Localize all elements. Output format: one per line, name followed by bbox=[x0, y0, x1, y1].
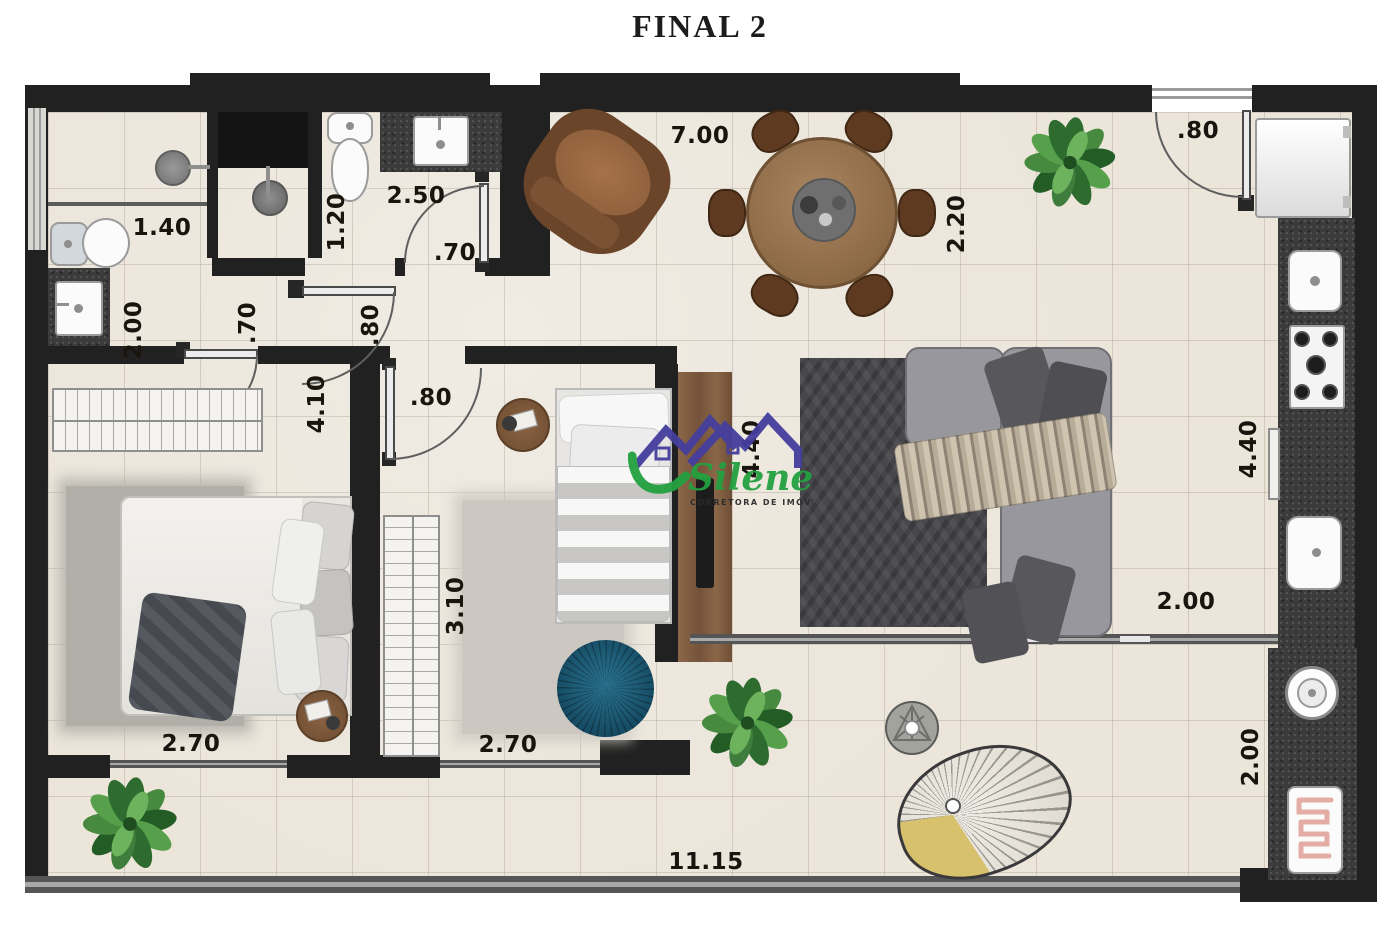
shaft bbox=[212, 112, 310, 168]
wardrobe bbox=[383, 515, 440, 757]
wall bbox=[540, 73, 960, 86]
faucet-icon bbox=[57, 303, 69, 306]
wall bbox=[190, 73, 490, 86]
door-frame bbox=[1152, 88, 1252, 91]
watermark-logo: Silene CORRETORA DE IMÓVEIS bbox=[628, 406, 813, 514]
dimension-label: 7.00 bbox=[660, 122, 740, 150]
shower-partition bbox=[48, 202, 207, 206]
tub-drain bbox=[1308, 689, 1316, 697]
throw-blanket bbox=[127, 591, 247, 722]
pillow bbox=[270, 608, 323, 696]
dimension-label: 2.00 bbox=[1146, 588, 1226, 616]
hanging-chair-hub bbox=[945, 798, 961, 814]
door-leaf bbox=[1242, 110, 1251, 200]
dimension-label: .80 bbox=[1158, 117, 1238, 145]
sink-drain bbox=[1310, 276, 1320, 286]
window-frame bbox=[39, 108, 41, 250]
bottle-icon bbox=[832, 196, 846, 210]
wall bbox=[207, 112, 218, 258]
dining-chair bbox=[708, 189, 746, 237]
sink-drain bbox=[74, 304, 83, 313]
wall bbox=[287, 755, 380, 778]
sliding-door-handle bbox=[1120, 636, 1150, 642]
dimension-label: 3.10 bbox=[442, 566, 470, 646]
wall bbox=[48, 346, 184, 364]
decor-item bbox=[326, 716, 340, 730]
sink-drain bbox=[436, 140, 445, 149]
window-icon bbox=[656, 448, 669, 459]
toilet-button bbox=[64, 240, 72, 248]
wall bbox=[380, 755, 440, 778]
sliding-door-bedroom2 bbox=[440, 760, 610, 768]
heater-coil-icon bbox=[1291, 792, 1339, 868]
fridge-hinge bbox=[1343, 126, 1351, 138]
stove-burner bbox=[1294, 331, 1310, 347]
stove-burner bbox=[1294, 384, 1310, 400]
dimension-label: 2.70 bbox=[468, 731, 548, 759]
dimension-label: 2.20 bbox=[943, 184, 971, 264]
dimension-label: 1.20 bbox=[323, 182, 351, 262]
service-window bbox=[1268, 428, 1280, 500]
dimension-label: 1.40 bbox=[122, 214, 202, 242]
balcony-table bbox=[884, 700, 940, 756]
dimension-label: 4.10 bbox=[303, 364, 331, 444]
window-frame bbox=[33, 108, 35, 250]
wall bbox=[212, 258, 305, 276]
shower-head-icon bbox=[252, 180, 288, 216]
dimension-label: 2.70 bbox=[151, 730, 231, 758]
balcony-railing bbox=[25, 876, 1240, 893]
shower-head-icon bbox=[155, 150, 191, 186]
toilet-button bbox=[346, 122, 354, 130]
shower-arm bbox=[188, 165, 210, 169]
dining-chair bbox=[898, 189, 936, 237]
stove-burner bbox=[1322, 331, 1338, 347]
stove-burner bbox=[1322, 384, 1338, 400]
bottle-icon bbox=[818, 212, 833, 227]
wardrobe bbox=[52, 388, 263, 452]
fridge-hinge bbox=[1343, 196, 1351, 208]
plant bbox=[1020, 115, 1120, 210]
window bbox=[28, 108, 46, 250]
wall bbox=[465, 346, 677, 364]
dimension-label: 2.00 bbox=[120, 290, 148, 370]
page-title: FINAL 2 bbox=[0, 8, 1400, 45]
dimension-label: 2.00 bbox=[1237, 717, 1265, 797]
sliding-door-bedroom1 bbox=[110, 760, 287, 768]
plant bbox=[700, 672, 795, 774]
pouf-texture bbox=[557, 640, 654, 737]
wall bbox=[600, 740, 690, 775]
dimension-label: .80 bbox=[391, 384, 471, 412]
dimension-label: 4.40 bbox=[1235, 409, 1263, 489]
refrigerator bbox=[1255, 118, 1351, 218]
dimension-label: .70 bbox=[415, 239, 495, 267]
watermark-tagline: CORRETORA DE IMÓVEIS bbox=[690, 496, 813, 507]
floor-plan: FINAL 2 bbox=[0, 0, 1400, 933]
plant bbox=[80, 775, 180, 873]
shower-arm bbox=[266, 166, 270, 196]
faucet-icon bbox=[438, 116, 441, 130]
dimension-label: .70 bbox=[234, 283, 262, 363]
sink-drain bbox=[1312, 548, 1321, 557]
decor-item bbox=[502, 416, 517, 431]
stove-burner bbox=[1306, 355, 1326, 375]
wall-bedroom-divider bbox=[350, 364, 380, 772]
dimension-label: .80 bbox=[357, 285, 385, 365]
wall bbox=[308, 112, 322, 258]
watermark-brand: Silene bbox=[688, 457, 813, 499]
dimension-label: 2.50 bbox=[376, 182, 456, 210]
door-frame bbox=[1152, 96, 1252, 99]
bottle-icon bbox=[800, 196, 818, 214]
dimension-label: 11.15 bbox=[666, 848, 746, 876]
